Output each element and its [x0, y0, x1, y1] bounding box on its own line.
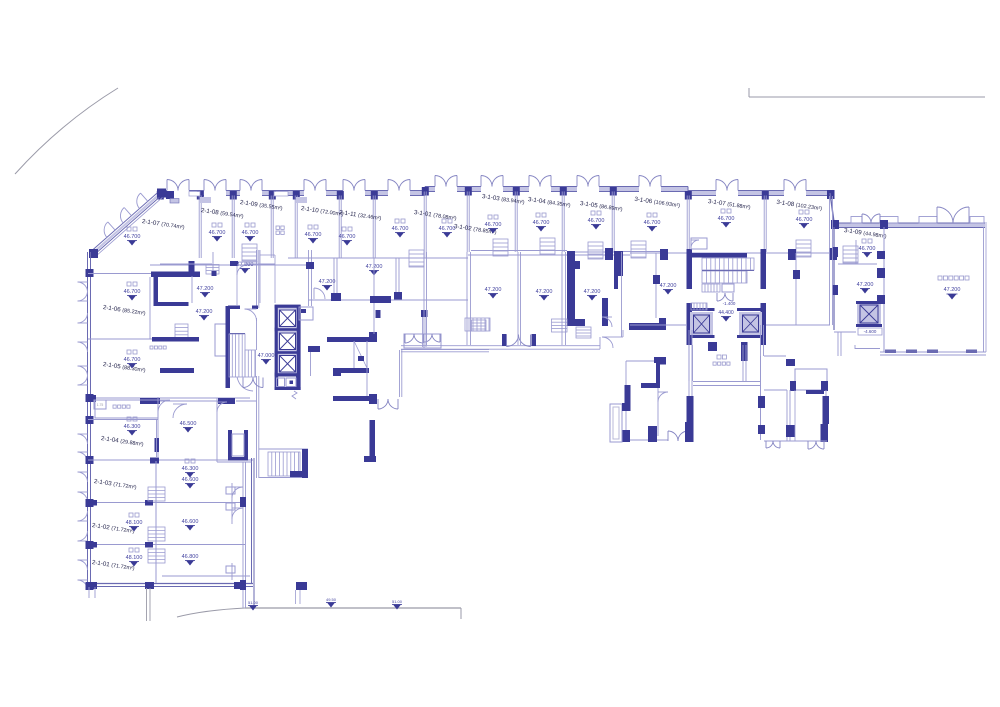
svg-text:46.700: 46.700 [439, 226, 456, 232]
svg-text:48.100: 48.100 [126, 555, 143, 561]
svg-text:47.200: 47.200 [857, 282, 874, 288]
svg-text:46.700: 46.700 [533, 220, 550, 226]
svg-text:46.700: 46.700 [485, 222, 502, 228]
svg-text:46.700: 46.700 [644, 220, 661, 226]
svg-text:46.700: 46.700 [392, 226, 409, 232]
svg-text:47.200: 47.200 [660, 283, 677, 289]
svg-text:46.500: 46.500 [180, 421, 197, 427]
svg-text:46.700: 46.700 [859, 246, 876, 252]
svg-text:47.200: 47.200 [197, 286, 214, 292]
svg-text:46.300: 46.300 [124, 424, 141, 430]
svg-text:-1.400: -1.400 [723, 301, 736, 306]
svg-text:47.200: 47.200 [485, 287, 502, 293]
svg-text:46.800: 46.800 [182, 554, 199, 560]
svg-text:47.200: 47.200 [584, 289, 601, 295]
svg-text:46.700: 46.700 [796, 217, 813, 223]
svg-text:46.600: 46.600 [182, 477, 199, 483]
svg-text:47.200: 47.200 [319, 279, 336, 285]
svg-text:46.700: 46.700 [339, 234, 356, 240]
svg-text:1.75: 1.75 [97, 403, 104, 407]
svg-text:51.00: 51.00 [248, 600, 259, 605]
svg-text:46.700: 46.700 [588, 218, 605, 224]
svg-text:47.200: 47.200 [196, 309, 213, 315]
svg-text:51.00: 51.00 [392, 599, 403, 604]
svg-text:-4.600: -4.600 [864, 329, 877, 334]
svg-text:46.300: 46.300 [182, 466, 199, 472]
svg-text:46.700: 46.700 [124, 234, 141, 240]
svg-text:46.700: 46.700 [305, 232, 322, 238]
svg-text:49.50: 49.50 [326, 597, 337, 602]
svg-text:46.700: 46.700 [209, 230, 226, 236]
svg-text:47.000: 47.000 [258, 353, 275, 359]
svg-text:47.200: 47.200 [944, 287, 961, 293]
svg-text:44.400: 44.400 [718, 310, 734, 316]
svg-text:46.700: 46.700 [242, 230, 259, 236]
svg-text:47.200: 47.200 [536, 289, 553, 295]
svg-text:48.100: 48.100 [126, 520, 143, 526]
svg-text:46.700: 46.700 [718, 216, 735, 222]
svg-text:46.700: 46.700 [124, 357, 141, 363]
svg-text:46.700: 46.700 [124, 289, 141, 295]
svg-text:46.600: 46.600 [182, 519, 199, 525]
